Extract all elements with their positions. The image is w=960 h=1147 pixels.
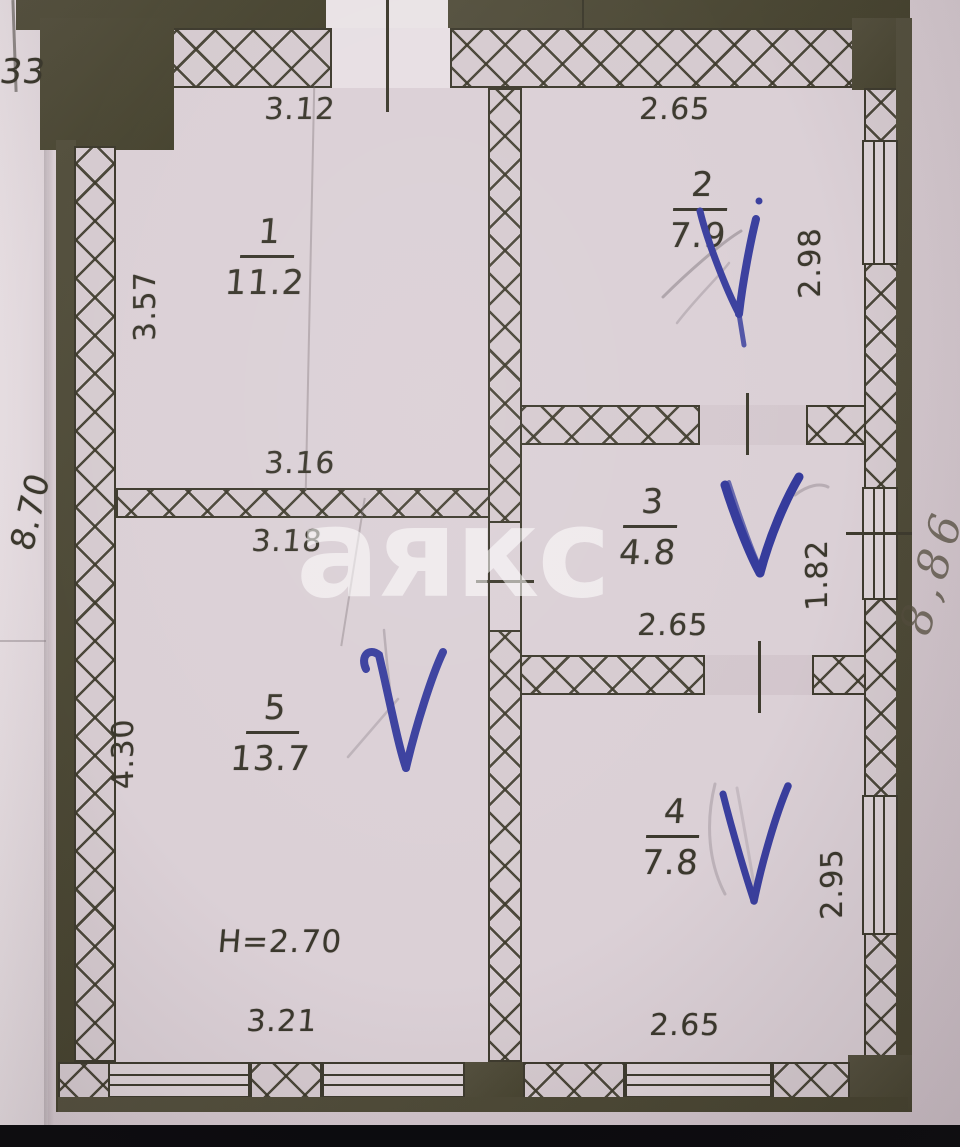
check-stroke <box>700 211 739 314</box>
interior-wall-room3-room4-left <box>520 655 705 695</box>
checkmark-room-3 <box>700 455 835 605</box>
room-2-dim-right: 2.98 <box>793 199 835 327</box>
outer-wall-left <box>74 146 116 1062</box>
room-1-number: 1 <box>240 212 298 258</box>
bottom-wall-base-band <box>58 1097 908 1112</box>
room-1-dim-left: 3.57 <box>128 247 170 365</box>
top-dimension-tick <box>582 0 584 28</box>
bottom-wall-pier-3 <box>523 1062 625 1100</box>
room-5-number: 5 <box>246 688 304 734</box>
window-room-4 <box>862 795 898 935</box>
pencil-scribble <box>795 485 828 495</box>
check-stroke <box>739 219 756 314</box>
bottom-wall-pier-2 <box>250 1062 322 1100</box>
check-stroke <box>754 786 788 901</box>
interior-wall-room3-room4-right <box>812 655 866 695</box>
window-room-3 <box>862 487 898 600</box>
window-room-5-right <box>322 1062 465 1098</box>
interior-wall-room2-room3-left <box>520 405 700 445</box>
room-1-area: 11.2 <box>208 263 321 303</box>
room-1-dim-bottom: 3.16 <box>243 446 356 481</box>
interior-wall-vertical-lower <box>488 630 522 1062</box>
pen-dot <box>756 198 763 205</box>
room-5-area: 13.7 <box>211 739 329 779</box>
room-1-dim-top: 3.12 <box>243 92 356 127</box>
check-stroke <box>760 477 799 573</box>
floor-plan-photo: 3.12 3.57 3.16 2.65 2.98 2.65 1.82 2.95 … <box>0 0 960 1147</box>
room-5-dim-left: 4.30 <box>106 697 148 812</box>
door-tick-room2-room3 <box>746 393 749 455</box>
window-room-4-bottom <box>625 1062 772 1098</box>
photo-bottom-black-strip <box>0 1125 960 1147</box>
corner-pier-top-left <box>40 18 174 150</box>
door-tick-room3-room4 <box>758 641 761 713</box>
checkmark-room-4 <box>695 762 820 927</box>
check-stroke <box>739 314 744 345</box>
outer-wall-left-edge <box>56 140 76 1112</box>
check-stroke <box>723 794 754 901</box>
room-1-label: 1 11.2 <box>208 212 326 303</box>
interior-wall-room2-room3-right <box>806 405 866 445</box>
entrance-opening-tick <box>386 0 389 112</box>
room-4-dim-bottom: 2.65 <box>628 1008 741 1043</box>
checkmark-room-5 <box>340 625 475 795</box>
room-4-dim-right: 2.95 <box>815 824 857 945</box>
margin-note-top-left: 33 <box>0 52 49 92</box>
check-stroke <box>364 652 406 768</box>
agency-watermark: аякс <box>296 492 609 616</box>
room-3-number: 3 <box>623 482 681 528</box>
room-2-dim-top: 2.65 <box>618 92 731 127</box>
check-stroke <box>406 652 443 768</box>
ceiling-height-note: H=2.70 <box>198 924 361 960</box>
bottom-wall-pier-4 <box>772 1062 850 1100</box>
room-5-dim-bottom: 3.21 <box>230 1004 333 1039</box>
outer-wall-top-edge-right <box>448 0 910 30</box>
checkmark-room-2 <box>655 185 785 360</box>
bottom-wall-pier-1 <box>58 1062 110 1100</box>
outer-wall-top-right-segment <box>450 28 866 88</box>
room-3-dim-bottom: 2.65 <box>616 608 729 643</box>
room-3-label: 3 4.8 <box>596 482 704 573</box>
window-room-5-left <box>108 1062 250 1098</box>
entrance-opening <box>332 28 450 88</box>
paper-fold-shadow <box>44 0 54 1127</box>
room-3-area: 4.8 <box>596 533 699 573</box>
window-room-2 <box>862 140 898 265</box>
room-5-label: 5 13.7 <box>211 688 334 779</box>
paper-crease-left <box>0 640 46 642</box>
interior-wall-vertical-upper <box>488 88 522 523</box>
window-room-3-tick <box>846 532 912 535</box>
check-stroke <box>729 482 761 569</box>
